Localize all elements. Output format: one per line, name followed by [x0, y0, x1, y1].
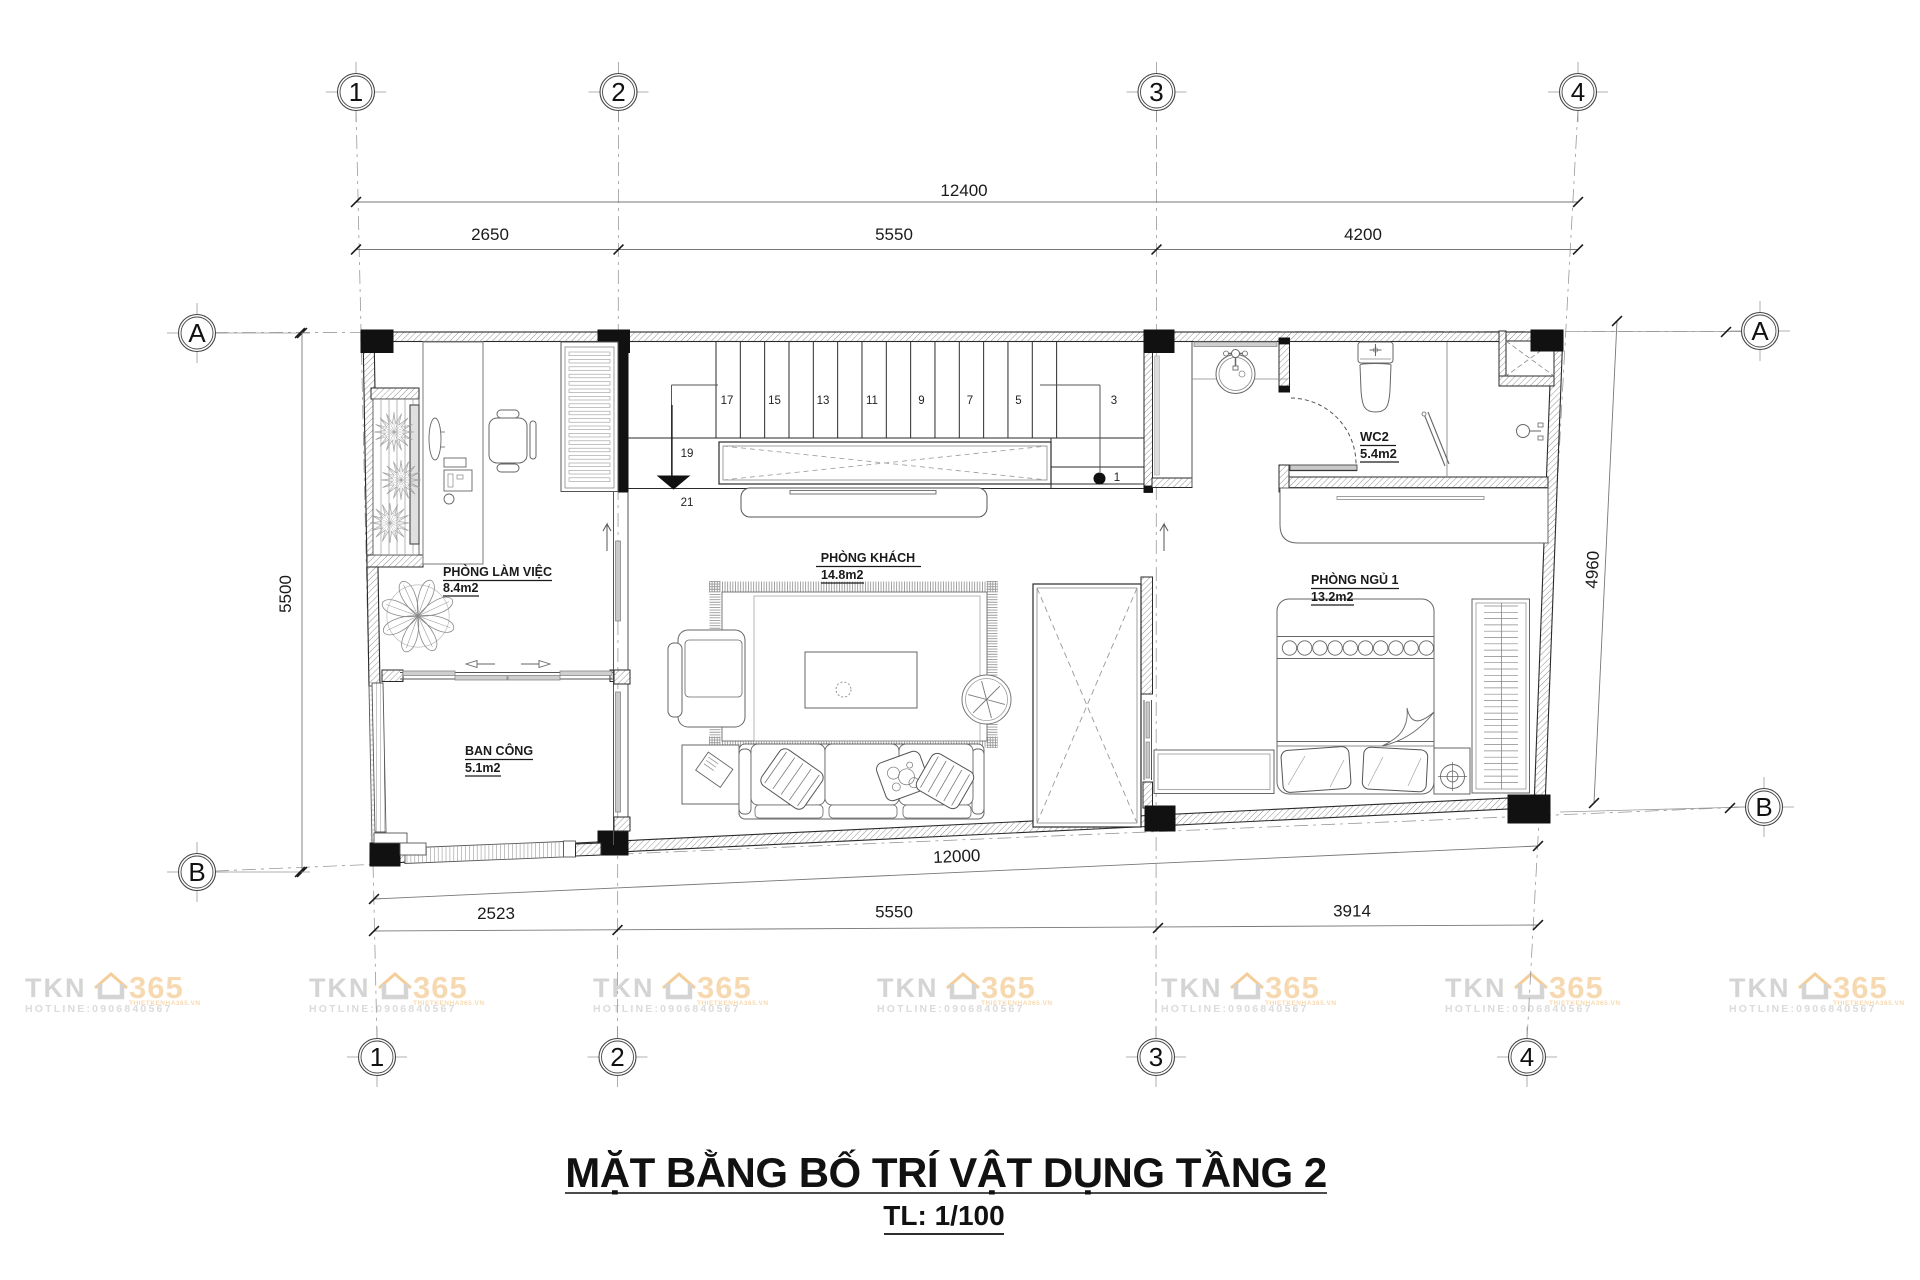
svg-text:13.2m2: 13.2m2	[1311, 590, 1353, 604]
svg-text:TKN: TKN	[877, 973, 939, 1003]
svg-text:HOTLINE:0906840567: HOTLINE:0906840567	[309, 1003, 457, 1015]
svg-text:5.1m2: 5.1m2	[465, 761, 500, 775]
svg-text:TL: 1/100: TL: 1/100	[883, 1200, 1004, 1231]
svg-text:PHÒNG NGỦ 1: PHÒNG NGỦ 1	[1311, 572, 1399, 587]
svg-text:4960: 4960	[1582, 550, 1603, 589]
svg-text:17: 17	[721, 395, 734, 407]
svg-text:1: 1	[349, 77, 363, 107]
svg-text:MẶT BẰNG BỐ TRÍ VẬT DỤNG TẦNG: MẶT BẰNG BỐ TRÍ VẬT DỤNG TẦNG 2	[565, 1148, 1326, 1196]
svg-text:WC2: WC2	[1360, 429, 1389, 444]
svg-text:TKN: TKN	[25, 973, 87, 1003]
svg-text:HOTLINE:0906840567: HOTLINE:0906840567	[25, 1003, 173, 1015]
svg-text:B: B	[1755, 792, 1772, 822]
svg-text:14.8m2: 14.8m2	[821, 568, 863, 582]
svg-text:HOTLINE:0906840567: HOTLINE:0906840567	[1729, 1003, 1877, 1015]
svg-text:TKN: TKN	[1445, 973, 1507, 1003]
svg-text:A: A	[1751, 316, 1769, 346]
svg-text:TKN: TKN	[1729, 973, 1791, 1003]
svg-text:3: 3	[1149, 77, 1163, 107]
svg-text:5.4m2: 5.4m2	[1360, 446, 1397, 461]
svg-text:8.4m2: 8.4m2	[443, 581, 478, 595]
svg-text:HOTLINE:0906840567: HOTLINE:0906840567	[593, 1003, 741, 1015]
svg-text:5500: 5500	[276, 575, 295, 613]
svg-text:19: 19	[681, 448, 694, 460]
svg-text:15: 15	[768, 395, 781, 407]
svg-text:HOTLINE:0906840567: HOTLINE:0906840567	[1161, 1003, 1309, 1015]
svg-text:3914: 3914	[1333, 902, 1371, 921]
svg-text:PHÒNG LÀM VIỆC: PHÒNG LÀM VIỆC	[443, 564, 552, 579]
svg-text:5550: 5550	[875, 903, 913, 922]
svg-text:5: 5	[1015, 395, 1021, 407]
svg-text:3: 3	[1111, 395, 1117, 407]
svg-text:1: 1	[1114, 472, 1120, 484]
svg-text:TKN: TKN	[309, 973, 371, 1003]
svg-text:PHÒNG KHÁCH: PHÒNG KHÁCH	[821, 550, 915, 565]
svg-text:1: 1	[370, 1042, 384, 1072]
svg-text:7: 7	[967, 395, 973, 407]
svg-text:3: 3	[1149, 1042, 1163, 1072]
svg-text:9: 9	[918, 395, 924, 407]
svg-text:B: B	[188, 857, 205, 887]
svg-text:2650: 2650	[471, 225, 509, 244]
svg-text:4: 4	[1571, 77, 1585, 107]
svg-text:2: 2	[610, 1042, 624, 1072]
svg-text:HOTLINE:0906840567: HOTLINE:0906840567	[1445, 1003, 1593, 1015]
svg-text:11: 11	[866, 395, 878, 407]
svg-text:21: 21	[681, 497, 694, 509]
svg-text:A: A	[188, 318, 206, 348]
svg-text:2523: 2523	[477, 904, 515, 923]
svg-text:4200: 4200	[1344, 225, 1382, 244]
svg-text:BAN CÔNG: BAN CÔNG	[465, 743, 533, 758]
svg-text:2: 2	[611, 77, 625, 107]
svg-text:HOTLINE:0906840567: HOTLINE:0906840567	[877, 1003, 1025, 1015]
svg-text:12400: 12400	[940, 181, 987, 200]
svg-text:13: 13	[817, 395, 830, 407]
svg-text:TKN: TKN	[1161, 973, 1223, 1003]
svg-text:5550: 5550	[875, 225, 913, 244]
svg-text:4: 4	[1520, 1042, 1534, 1072]
svg-text:TKN: TKN	[593, 973, 655, 1003]
svg-text:12000: 12000	[933, 846, 981, 867]
